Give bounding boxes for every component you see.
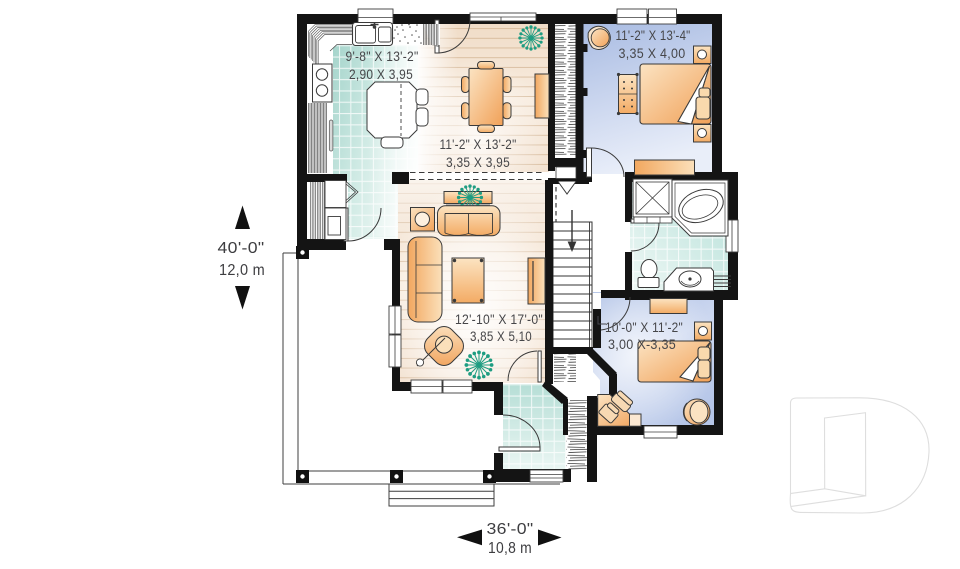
svg-text:12,0 m: 12,0 m xyxy=(219,262,265,279)
svg-text:40'-0": 40'-0" xyxy=(218,240,265,257)
svg-text:12'-10" X 17'-0": 12'-10" X 17'-0" xyxy=(455,312,543,327)
svg-text:2,90 X 3,95: 2,90 X 3,95 xyxy=(349,67,413,82)
svg-text:10'-0" X 11'-2": 10'-0" X 11'-2" xyxy=(605,320,683,335)
svg-text:36'-0": 36'-0" xyxy=(487,521,534,538)
svg-text:3,35 X 4,00: 3,35 X 4,00 xyxy=(619,46,686,61)
svg-text:11'-2" X 13'-4": 11'-2" X 13'-4" xyxy=(616,28,691,43)
svg-text:11'-2" X 13'-2": 11'-2" X 13'-2" xyxy=(440,137,517,152)
svg-text:10,8 m: 10,8 m xyxy=(488,540,532,557)
svg-text:3,85 X 5,10: 3,85 X 5,10 xyxy=(470,329,532,344)
svg-text:3,35 X 3,95: 3,35 X 3,95 xyxy=(446,155,510,170)
svg-text:3,00 X-3,35: 3,00 X-3,35 xyxy=(608,337,676,352)
svg-text:9'-8" X 13'-2": 9'-8" X 13'-2" xyxy=(346,49,419,64)
